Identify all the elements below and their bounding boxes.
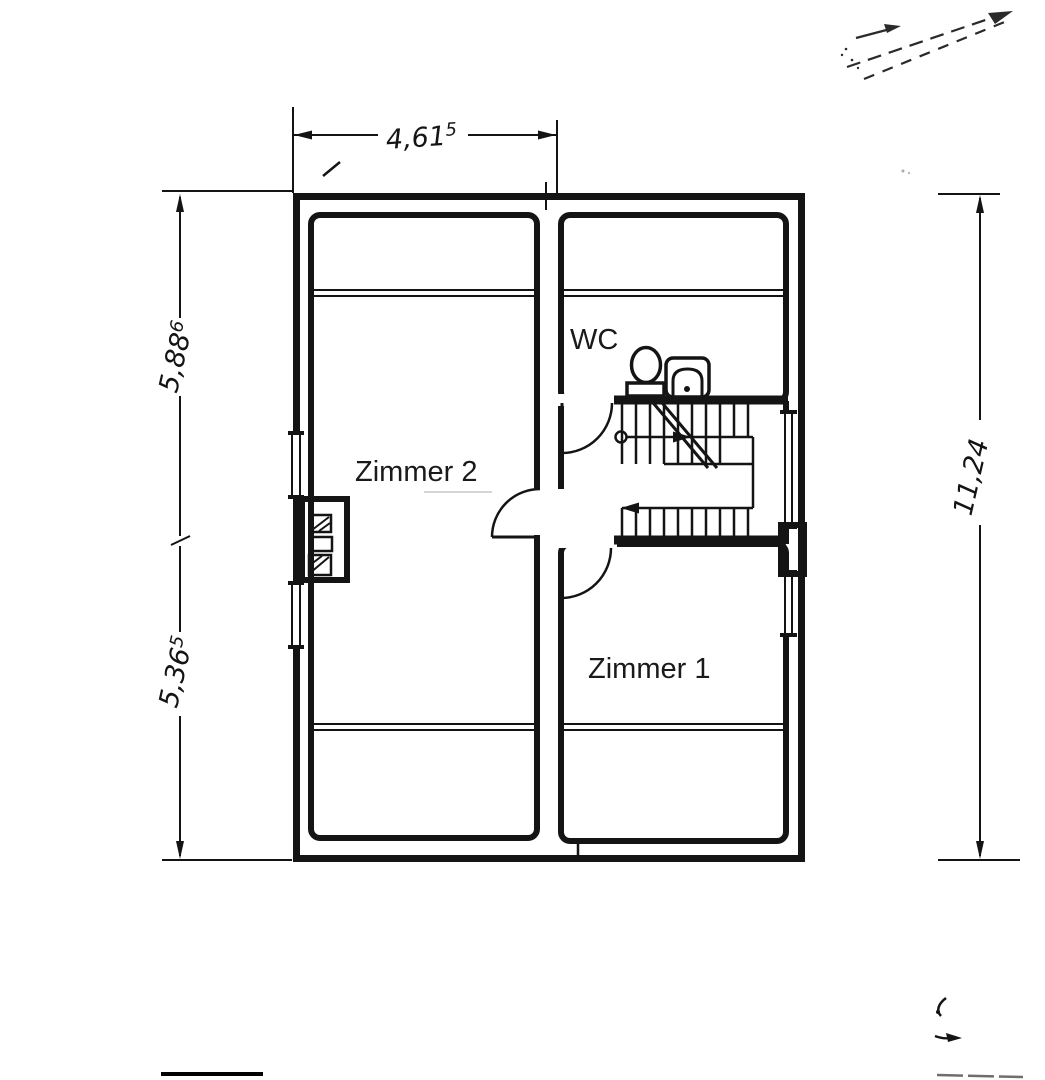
dim-label-left-lower: 5,365 (152, 634, 199, 711)
sink-icon (666, 358, 709, 397)
bottom-right-line (937, 1075, 1023, 1077)
room-label-zimmer2: Zimmer 2 (355, 456, 477, 488)
floor-plan-drawing: Zimmer 2 Zimmer 1 WC 4,615 5,886 5,365 (0, 0, 1045, 1080)
room-label-zimmer1: Zimmer 1 (588, 653, 710, 685)
dim-label-left-upper: 5,886 (152, 319, 199, 396)
dim-label-top: 4,615 (385, 119, 459, 156)
walk-arrow-down-icon (621, 503, 639, 514)
door-zimmer1 (561, 548, 611, 598)
toilet-icon (627, 348, 664, 397)
sink-drain-dot (684, 386, 690, 392)
bottom-marks (161, 998, 1023, 1077)
dim-split-tick (171, 536, 190, 545)
pen-tick (323, 162, 340, 176)
stair-treads-upper (622, 404, 748, 464)
dim-label-right: 11,24 (948, 436, 996, 518)
room-zimmer1-outline (561, 544, 786, 841)
stair-walls (614, 400, 788, 540)
scribble-arrowhead (884, 24, 901, 33)
dim-arrow-icon (976, 841, 984, 859)
stair-run (616, 398, 754, 537)
dim-arrow-icon (176, 194, 184, 212)
dim-arrow-icon (976, 195, 984, 213)
room-wc-outline (561, 215, 786, 401)
scanned-floor-plan-page: { "plan": { "type": "floor-plan", "room_… (0, 0, 1045, 1080)
dim-arrow-icon (538, 131, 556, 140)
dimension-right: 11,24 (938, 194, 1020, 860)
stair-treads-lower (622, 508, 748, 537)
dim-arrow-icon (176, 841, 184, 859)
dim-arrow-icon (294, 131, 312, 140)
door-swing-arc (561, 548, 611, 598)
scribble-arrowhead (988, 11, 1013, 24)
sketch-scribble-top-right (841, 11, 1013, 79)
dimension-left: 5,886 5,365 (152, 191, 292, 860)
room-label-wc: WC (570, 324, 618, 356)
door-wc (562, 403, 612, 453)
pen-arrowhead (946, 1033, 962, 1042)
door-openings (530, 394, 617, 548)
door-swing-arc (562, 403, 612, 453)
